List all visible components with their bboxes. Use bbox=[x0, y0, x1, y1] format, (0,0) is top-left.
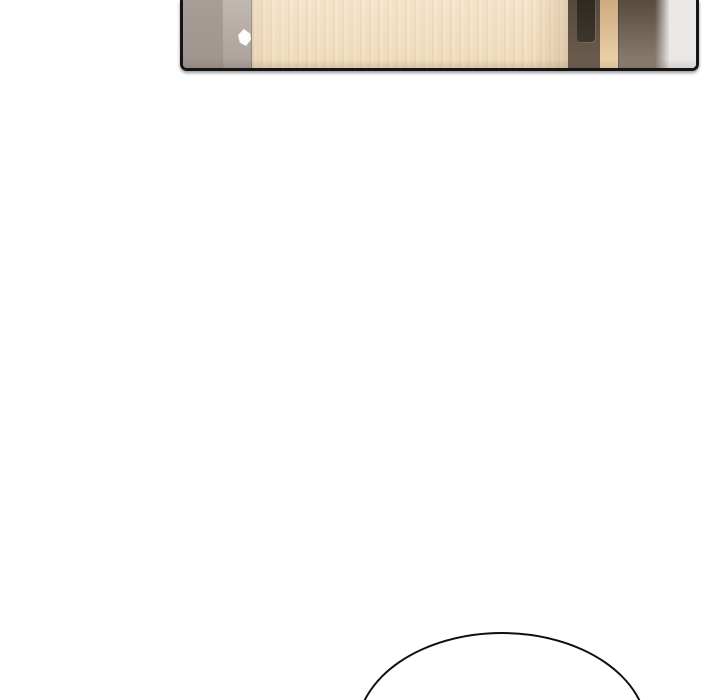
wall-left-dark bbox=[183, 0, 222, 68]
webtoon-page bbox=[0, 0, 720, 700]
door-handle-groove bbox=[577, 0, 595, 42]
wooden-door bbox=[252, 0, 568, 68]
comic-panel bbox=[180, 0, 699, 71]
wall-right-light bbox=[655, 0, 696, 68]
panel-bottom-shade bbox=[183, 59, 696, 68]
speech-bubble bbox=[356, 632, 648, 700]
panel-artwork bbox=[183, 0, 696, 68]
door-edge-wood bbox=[600, 0, 618, 68]
door-frame bbox=[568, 0, 600, 68]
